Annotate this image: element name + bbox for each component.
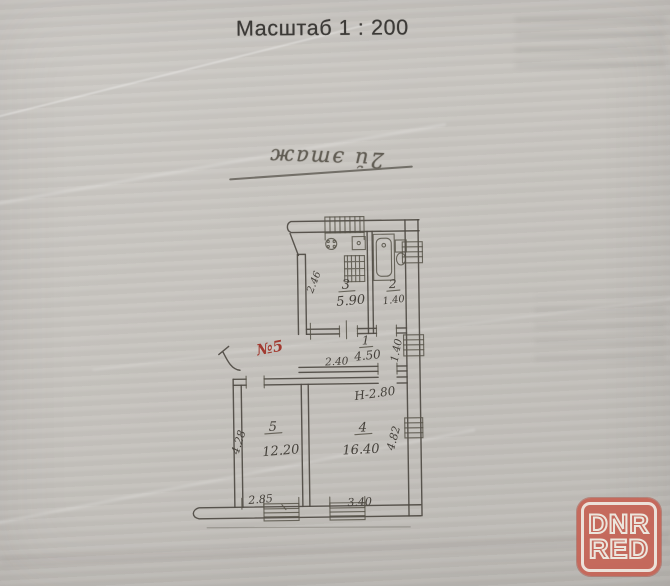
- room-kitchen-area: 5.90: [336, 293, 366, 310]
- fraction-line: [265, 433, 282, 434]
- dimension-labels: 2.40 1.40 2.46 Н-2.80 4.28 4.82 2.85 3.4…: [226, 268, 407, 511]
- room-labels: 3 5.90 2 1.40 1 4.50 5 12.20 4 16.40: [259, 277, 408, 460]
- watermark-line-2: RED: [589, 537, 649, 562]
- scanned-floor-plan-photo: Масштаб 1 : 200 2й этаж: [0, 0, 670, 586]
- window-symbol: [260, 216, 426, 521]
- fraction-line: [355, 433, 372, 434]
- room-hall-area: 4.50: [352, 347, 381, 364]
- red-apartment-mark: №5: [254, 337, 285, 360]
- dim-room4-side: 4.82: [384, 425, 403, 453]
- floor-plan-drawing: 3 5.90 2 1.40 1 4.50 5 12.20 4 16.40: [0, 0, 670, 586]
- dnr-red-watermark: DNR RED: [577, 498, 661, 576]
- dim-room4-width: 3.40: [347, 495, 372, 509]
- sink-icon: [352, 236, 365, 249]
- dim-kitchen-side: 2.46: [305, 269, 324, 295]
- walls: [189, 220, 423, 530]
- dim-bath-side: 1.40: [389, 338, 405, 364]
- room-5-area: 12.20: [262, 442, 300, 460]
- room-hall-number: 1: [362, 333, 370, 347]
- room-bathroom-number: 2: [388, 277, 397, 291]
- dim-room5-width: 2.85: [247, 492, 273, 507]
- dnr-red-watermark-frame: DNR RED: [581, 502, 657, 572]
- bathtub-icon: [373, 234, 395, 280]
- room-4-area: 16.40: [342, 442, 380, 459]
- dim-hall-width: 2.40: [324, 355, 349, 368]
- height-note: Н-2.80: [352, 384, 396, 404]
- dim-room5-side: 4.28: [229, 429, 249, 457]
- room-bathroom-area: 1.40: [382, 294, 406, 308]
